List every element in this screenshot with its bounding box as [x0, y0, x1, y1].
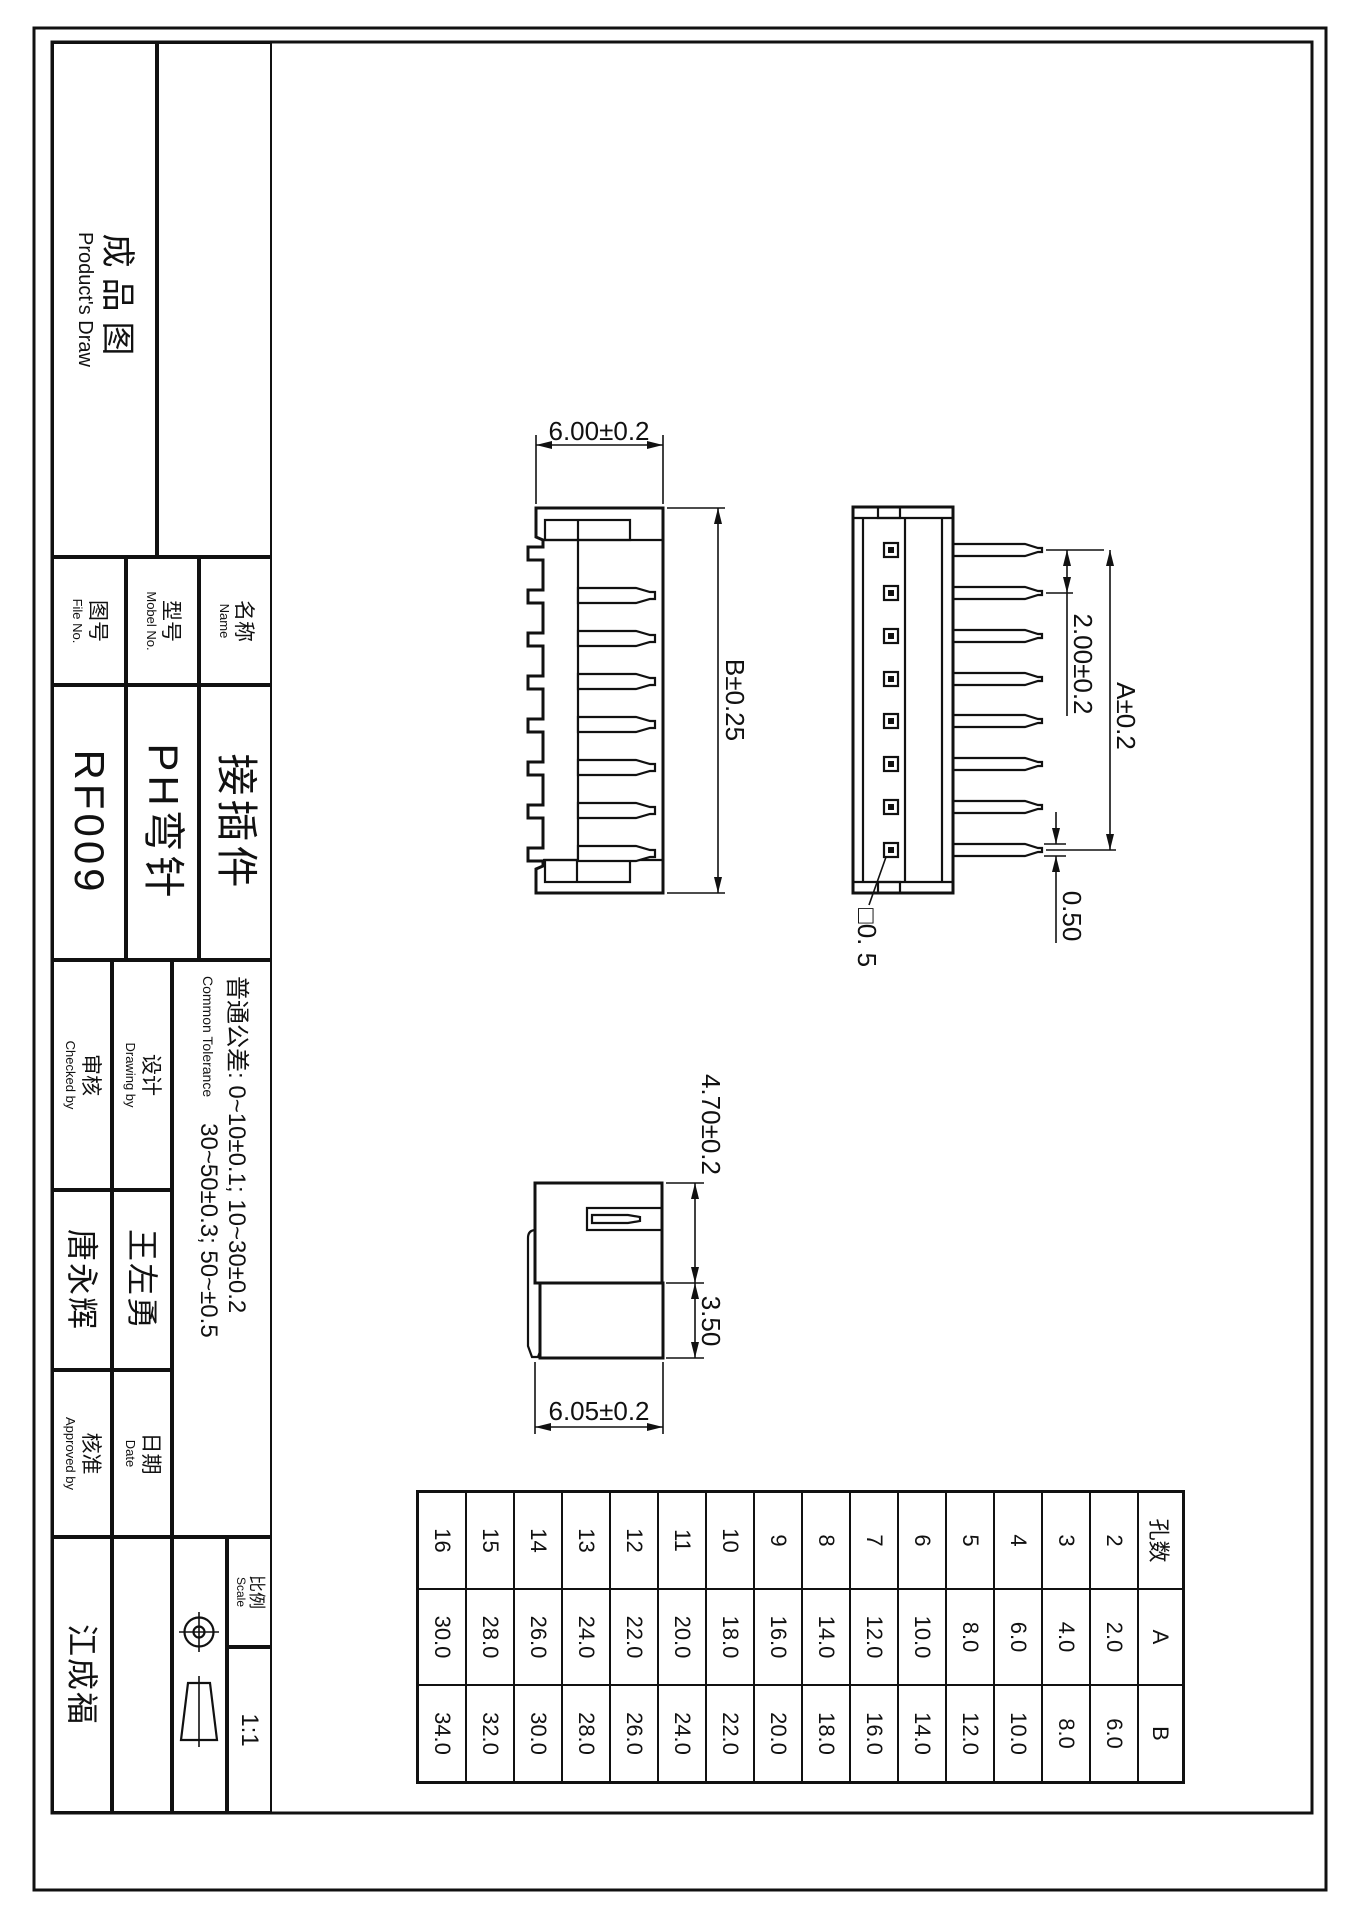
drawing-sheet: 6.00±0.2 B±0.25	[0, 0, 1356, 1920]
pin-table-cell: 7	[850, 1492, 898, 1589]
pin-table-cell: 16	[418, 1492, 466, 1589]
drawing-title-cn: 成品图	[96, 234, 135, 366]
pin-table-cell: 16.0	[850, 1685, 898, 1782]
scale-value-cell: 1:1	[227, 1647, 272, 1813]
approved-by-value: 江成福	[64, 1624, 101, 1726]
approved-by-value-cell: 江成福	[52, 1537, 112, 1813]
pin-table-cell: 32.0	[466, 1685, 514, 1782]
projection-symbol-cell	[172, 1537, 227, 1813]
pin-table-cell: 20.0	[754, 1685, 802, 1782]
file-value: RF009	[65, 749, 113, 895]
front-view-pins	[953, 544, 1042, 856]
pin-table-cell: 22.0	[610, 1589, 658, 1685]
approved-by-cn: 核准	[77, 1433, 101, 1475]
pin-table-header-b: B	[1138, 1685, 1183, 1782]
file-label-en: File No.	[69, 599, 84, 644]
dim-top-depth: 6.00±0.2	[536, 416, 663, 504]
pin-table-cell: 30.0	[418, 1589, 466, 1685]
pin-table-cell: 8	[802, 1492, 850, 1589]
model-value: PH弯针	[138, 743, 186, 901]
pin-table-cell: 14	[514, 1492, 562, 1589]
front-view: 2.00±0.2 A±0.2 0.50	[852, 507, 1141, 967]
pin-table-cell: 3	[1042, 1492, 1090, 1589]
pin-table-cell: 26.0	[514, 1589, 562, 1685]
pin-table-cell: 12.0	[850, 1589, 898, 1685]
pin-table-cell: 18.0	[802, 1685, 850, 1782]
approved-by-en: Approved by	[62, 1417, 77, 1490]
file-value-cell: RF009	[52, 685, 126, 960]
date-label-en: Date	[122, 1440, 137, 1467]
pin-table-cell: 24.0	[658, 1685, 706, 1782]
pin-table-cell: 2.0	[1090, 1589, 1138, 1685]
scale-label-cn: 比例	[247, 1575, 267, 1609]
pin-table-cell: 26.0	[610, 1685, 658, 1782]
dim-label-pitch: 2.00±0.2	[1068, 613, 1098, 714]
approved-by-label-cell: 核准 Approved by	[52, 1370, 112, 1537]
pin-table-cell: 22.0	[706, 1685, 754, 1782]
pin-table-cell: 34.0	[418, 1685, 466, 1782]
checked-by-label-cell: 审核 Checked by	[52, 960, 112, 1190]
dim-label-thickness: 0.50	[1057, 891, 1087, 942]
pin-table-cell: 18.0	[706, 1589, 754, 1685]
pin-table-cell: 12	[610, 1492, 658, 1589]
model-label-cell: 型号 Mobel No.	[126, 557, 199, 685]
top-view: 6.00±0.2 B±0.25	[528, 416, 750, 893]
tolerance-line2: 30~50±0.3; 50~±0.5	[194, 1123, 222, 1338]
side-view: 4.70±0.2 3.50 6.05±0.2	[528, 1074, 726, 1434]
pin-table-cell: 10.0	[898, 1589, 946, 1685]
date-value-cell	[112, 1537, 172, 1813]
date-label-cell: 日期 Date	[112, 1370, 172, 1537]
tolerance-label-en: Common Tolerance	[200, 976, 216, 1097]
scale-value: 1:1	[236, 1713, 264, 1746]
pin-table-header-holes: 孔数	[1138, 1492, 1183, 1589]
drawing-by-value-cell: 王左勇	[112, 1190, 172, 1370]
file-label-cn: 图号	[84, 600, 108, 642]
name-label-cell: 名称 Name	[199, 557, 272, 685]
drawing-by-en: Drawing by	[122, 1042, 137, 1107]
pin-table-cell: 24.0	[562, 1589, 610, 1685]
dim-side-pin-drop: 3.50	[666, 1283, 726, 1358]
pin-table-cell: 15	[466, 1492, 514, 1589]
drawing-title-cell: 成品图 Product's Draw	[52, 42, 157, 557]
dim-label-b: B±0.25	[720, 659, 750, 741]
pin-table-cell: 4.0	[1042, 1589, 1090, 1685]
drawing-title-en: Product's Draw	[73, 232, 96, 367]
pin-table-cell: 28.0	[466, 1589, 514, 1685]
dim-label-605: 6.05±0.2	[548, 1396, 649, 1426]
pin-table-cell: 11	[658, 1492, 706, 1589]
pin-table-cell: 9	[754, 1492, 802, 1589]
date-label-cn: 日期	[137, 1433, 161, 1475]
checked-by-value: 唐永辉	[64, 1229, 101, 1331]
pin-table-header-a: A	[1138, 1589, 1183, 1685]
dim-label-350: 3.50	[696, 1296, 726, 1347]
pin-table-cell: 12.0	[946, 1685, 994, 1782]
scale-label-cell: 比例 Scale	[227, 1537, 272, 1647]
pin-table-cell: 20.0	[658, 1589, 706, 1685]
name-value-cell: 接插件	[199, 685, 272, 960]
pin-table-cell: 14.0	[802, 1589, 850, 1685]
name-label-cn: 名称	[231, 600, 255, 642]
pin-table-cell: 4	[994, 1492, 1042, 1589]
pin-table-cell: 10	[706, 1492, 754, 1589]
name-value: 接插件	[211, 753, 259, 891]
name-label-en: Name	[216, 604, 231, 639]
pin-table-cell: 5	[946, 1492, 994, 1589]
pin-table-cell: 16.0	[754, 1589, 802, 1685]
pin-table-cell: 30.0	[514, 1685, 562, 1782]
dim-label-600: 6.00±0.2	[548, 416, 649, 446]
pin-table: 孔数 A B 22.06.034.08.046.010.058.012.0610…	[416, 1490, 1185, 1784]
drawing-by-cn: 设计	[137, 1054, 161, 1096]
tolerance-label-cn: 普通公差:	[223, 976, 250, 1079]
dim-side-height: 4.70±0.2	[666, 1074, 726, 1283]
drawing-by-value: 王左勇	[124, 1229, 161, 1331]
pin-table-cell: 10.0	[994, 1685, 1042, 1782]
dim-pin-thickness: 0.50	[1044, 812, 1087, 943]
checked-by-en: Checked by	[62, 1041, 77, 1110]
checked-by-cn: 审核	[77, 1054, 101, 1096]
pin-table-cell: 8.0	[946, 1589, 994, 1685]
dim-top-length: B±0.25	[667, 508, 750, 893]
tolerance-line1: 0~10±0.1; 10~30±0.2	[223, 1085, 250, 1313]
dim-label-square: □0. 5	[852, 908, 882, 967]
pin-table-cell: 2	[1090, 1492, 1138, 1589]
title-block-spacer-cell	[157, 42, 272, 557]
file-label-cell: 图号 File No.	[52, 557, 126, 685]
pin-table-cell: 28.0	[562, 1685, 610, 1782]
dim-pin-pitch: 2.00±0.2	[1046, 550, 1104, 716]
pin-table-cell: 6	[898, 1492, 946, 1589]
pin-table-cell: 13	[562, 1492, 610, 1589]
dim-label-span: A±0.2	[1111, 682, 1141, 750]
dim-label-470: 4.70±0.2	[696, 1074, 726, 1175]
pin-table-cell: 6.0	[994, 1589, 1042, 1685]
model-value-cell: PH弯针	[126, 685, 199, 960]
pin-table-cell: 6.0	[1090, 1685, 1138, 1782]
pin-table-cell: 14.0	[898, 1685, 946, 1782]
model-label-en: Mobel No.	[143, 591, 158, 650]
pin-table-cell: 8.0	[1042, 1685, 1090, 1782]
scale-label-en: Scale	[233, 1577, 247, 1607]
checked-by-value-cell: 唐永辉	[52, 1190, 112, 1370]
tolerance-cell: 普通公差: 0~10±0.1; 10~30±0.2 Common Toleran…	[172, 960, 272, 1537]
model-label-cn: 型号	[158, 600, 182, 642]
drawing-by-label-cell: 设计 Drawing by	[112, 960, 172, 1190]
dim-side-depth: 6.05±0.2	[535, 1362, 663, 1434]
